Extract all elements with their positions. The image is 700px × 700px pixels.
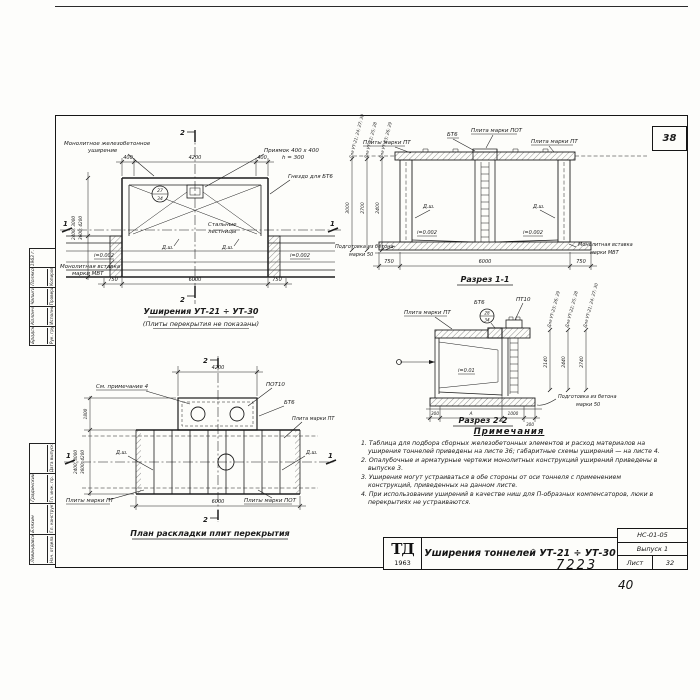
detail-sheet: 34 bbox=[157, 196, 163, 202]
section1-labels: Плиты марки ПТ БТ6 Плита марки ПОТ Плита… bbox=[335, 128, 633, 258]
dim-750-right: 750 bbox=[576, 259, 586, 265]
plan-subtitle-text: (Плиты перекрытия не показаны) bbox=[143, 320, 259, 328]
stamp-role: Исполнитель bbox=[47, 308, 54, 324]
plan-title-text: Уширения УТ-21 ÷ УТ-30 bbox=[144, 307, 259, 316]
section1-structure bbox=[353, 149, 647, 253]
section2-detail-mark: 28 34 bbox=[480, 309, 494, 323]
label-pit-2: h = 300 bbox=[282, 155, 305, 161]
dim-side-variants-2: 3600; 4200 bbox=[78, 216, 83, 240]
dim-300-left: 300 bbox=[431, 411, 439, 416]
section-mark-1-right: 1 bbox=[328, 452, 333, 460]
height-3000: 3000 bbox=[345, 202, 351, 214]
slope-label: i=0.01 bbox=[458, 368, 475, 374]
plan2-labels: См. примечание 4 ПОТ10 БТ6 Плита марки П… bbox=[66, 382, 335, 504]
height-group-1: Для УТ-23; 26; 29 bbox=[546, 290, 561, 329]
dim-variants-2: 3600; 4200 bbox=[80, 450, 85, 474]
height-2700: 2700 bbox=[360, 202, 366, 214]
stamp-cell: Бляхин Гл. конструктор bbox=[30, 504, 55, 534]
joint-right: Д.ш. bbox=[305, 450, 318, 456]
slope-left: i=0.002 bbox=[417, 230, 437, 236]
stamp-name: Бляхин bbox=[31, 505, 36, 533]
stamp-role: Дата выпуска bbox=[47, 445, 54, 472]
dim-side-variants-1: 2400; 3000 bbox=[71, 216, 76, 240]
stamp-cell: Градинский Гл. инж. пр. bbox=[30, 473, 55, 503]
handwritten-doc-number: 7223 bbox=[556, 558, 597, 573]
label-bt6: БТ6 bbox=[474, 300, 485, 306]
stamp-cell: Чапыгин Проверил bbox=[30, 287, 55, 306]
dim-400-left: 400 bbox=[123, 155, 133, 161]
dim-variants-1: 2400; 3000 bbox=[73, 450, 78, 474]
title-block-codes: НС-01-05 Выпуск 1 Лист 32 bbox=[617, 528, 688, 570]
section1-height-dims: Для УТ-21; 24; 27; 30 Для УТ-22; 25; 28 … bbox=[345, 113, 393, 252]
stamp-cell: Бродский Рук. группы bbox=[30, 326, 55, 345]
document-code: НС-01-05 bbox=[618, 529, 687, 543]
issue-label: Выпуск 1 bbox=[618, 543, 687, 557]
section-1-1-drawing: Для УТ-21; 24; 27; 30 Для УТ-22; 25; 28 … bbox=[335, 120, 685, 290]
logo-box: ТД 1963 bbox=[384, 538, 422, 569]
label-insert-2: марки МВТ bbox=[72, 271, 104, 277]
signature-stamp-lower: Левандовский Нач. отдела Бляхин Гл. конс… bbox=[29, 443, 56, 565]
stamp-role: Рук. группы bbox=[47, 328, 54, 344]
note-item: 2. Опалубочные и арматурные чертежи моно… bbox=[354, 457, 664, 473]
label-pt: Плита марки ПТ bbox=[292, 416, 335, 422]
height-2400: 2400 bbox=[375, 202, 381, 214]
detail-number: 28 bbox=[484, 311, 490, 316]
stamp-cell: Колончиков Исполнитель bbox=[30, 306, 55, 325]
stamp-year: 1963 г. bbox=[30, 249, 55, 267]
dim-750-left: 750 bbox=[384, 259, 394, 265]
detail-sheet: 34 bbox=[484, 318, 490, 323]
dim-6000: 6000 bbox=[189, 277, 202, 283]
stamp-role: Гл. конструктор bbox=[47, 506, 54, 533]
height-2140: 2140 bbox=[543, 356, 549, 368]
stamp-name: Бродский bbox=[31, 327, 36, 344]
label-pot-plural: Плиты марки ПОТ bbox=[244, 498, 297, 504]
section-2-2-drawing: 28 34 Плита марки ПТ БТ6 ПТ10 i=0.01 Под… bbox=[390, 292, 690, 432]
signature-stamp-upper: Бродский Рук. группы Колончиков Исполнит… bbox=[29, 248, 56, 346]
sheet-number: 32 bbox=[653, 556, 687, 569]
section-mark-2-top: 2 bbox=[203, 357, 208, 365]
label-see-note: См. примечание 4 bbox=[96, 384, 149, 390]
dim-6000: 6000 bbox=[212, 499, 225, 505]
plan2-title: План раскладки плит перекрытия bbox=[130, 529, 289, 539]
label-pt10: ПТ10 bbox=[516, 297, 531, 303]
plan-labels: Монолитное железобетонное уширение Приям… bbox=[60, 141, 333, 277]
section-mark-2-top: 2 bbox=[180, 129, 185, 137]
plan2-title-text: План раскладки плит перекрытия bbox=[130, 529, 289, 538]
stamp-role: Копировала bbox=[47, 269, 54, 285]
base-label-1: Подготовка из бетона bbox=[558, 394, 617, 400]
base-label-2: марки 50 bbox=[576, 402, 600, 408]
section2-title-text: Разрез 2-2 bbox=[459, 416, 508, 425]
note-item: 1. Таблица для подбора сборных железобет… bbox=[354, 440, 664, 456]
label-bt6: БТ6 bbox=[447, 132, 458, 138]
stamp-name: Левандовский bbox=[31, 535, 36, 563]
joint-left: Д.ш. bbox=[422, 204, 435, 210]
logo-year: 1963 bbox=[394, 559, 411, 567]
stamp-role: Нач. отдела bbox=[47, 536, 54, 563]
notes-block: Примечания 1. Таблица для подбора сборны… bbox=[354, 427, 664, 509]
label-slope-right: i=0.002 bbox=[290, 253, 310, 259]
label-joint-right: Д.ш. bbox=[221, 245, 234, 251]
joint-right: Д.ш. bbox=[532, 204, 545, 210]
stamp-cell: Полякова Копировала bbox=[30, 267, 55, 286]
section-mark-1-left: 1 bbox=[66, 452, 71, 460]
label-stairs-1: Стальные bbox=[208, 222, 237, 228]
height-2440: 2440 bbox=[561, 356, 567, 368]
detail-number: 27 bbox=[157, 188, 163, 194]
slope-right: i=0.002 bbox=[523, 230, 543, 236]
section2-height-dims: Для УТ-23; 26; 29 Для УТ-22; 25; 28 Для … bbox=[543, 282, 599, 392]
section1-bottom-dims: 750 6000 750 bbox=[373, 252, 597, 270]
insert-label-1: Монолитная вставка bbox=[578, 242, 633, 248]
label-slope-left: i=0.002 bbox=[94, 253, 114, 259]
joint-left: Д.ш. bbox=[115, 450, 128, 456]
stamp-name: Полякова bbox=[31, 269, 36, 286]
stamp-role: Гл. инж. пр. bbox=[47, 475, 54, 502]
label-pot10: ПОТ10 bbox=[266, 382, 285, 388]
label-pt-plural: Плиты марки ПТ bbox=[66, 498, 114, 504]
sheet-word: Лист bbox=[618, 556, 653, 569]
dim-4200: 4200 bbox=[189, 155, 202, 161]
label-monolithic-widening-1: Монолитное железобетонное bbox=[64, 141, 151, 147]
dim-750-right: 750 bbox=[272, 277, 282, 283]
notes-title: Примечания bbox=[354, 427, 664, 437]
section1-title-text: Разрез 1-1 bbox=[461, 275, 510, 284]
stamp-cell: Дата выпуска bbox=[30, 444, 55, 473]
base-label-2: марки 50 bbox=[349, 252, 373, 258]
dim-750-left: 750 bbox=[108, 277, 118, 283]
stamp-role: Проверил bbox=[47, 289, 54, 305]
stamp-name: Чапыгин bbox=[31, 288, 36, 305]
section-mark-1-left: 1 bbox=[63, 220, 68, 228]
label-pot: Плита марки ПОТ bbox=[471, 128, 523, 134]
plan-title: Уширения УТ-21 ÷ УТ-30 (Плиты перекрытия… bbox=[143, 307, 259, 329]
label-pit-1: Приямок 400 х 400 bbox=[264, 148, 319, 154]
label-pt-right: Плита марки ПТ bbox=[531, 139, 578, 145]
note-item: 3. Уширения могут устраиваться в обе сто… bbox=[354, 474, 664, 490]
label-socket-bt6: Гнездо для БТ6 bbox=[288, 174, 333, 180]
base-label-1: Подготовка из бетона bbox=[335, 244, 394, 250]
height-group-1: Для УТ-21; 24; 27; 30 bbox=[348, 113, 365, 160]
label-joint-left: Д.ш. bbox=[161, 245, 174, 251]
drawing-sheet: 38 2 2 1 1 bbox=[0, 0, 700, 700]
section-mark-2-bottom: 2 bbox=[180, 296, 185, 304]
dim-6000: 6000 bbox=[479, 259, 492, 265]
label-insert-1: Монолитная вставка bbox=[60, 264, 121, 270]
plan-detail-mark: 27 34 bbox=[152, 186, 168, 202]
section-mark-2-bottom: 2 bbox=[203, 516, 208, 524]
height-group-2: Для УТ-22; 25; 28 bbox=[564, 290, 579, 329]
label-monolithic-widening-2: уширение bbox=[87, 148, 118, 154]
label-pt: Плита марки ПТ bbox=[404, 310, 451, 316]
dim-1800: 1800 bbox=[83, 408, 88, 419]
plan-structure bbox=[66, 178, 335, 277]
dim-4200: 4200 bbox=[212, 365, 225, 371]
section2-title: Разрез 2-2 bbox=[453, 416, 513, 426]
label-pt-left: Плиты марки ПТ bbox=[363, 140, 411, 146]
stamp-cell: Левандовский Нач. отдела bbox=[30, 534, 55, 564]
insert-label-2: марки МВТ bbox=[590, 250, 620, 256]
sheet-row: Лист 32 bbox=[618, 556, 687, 569]
dim-1000: 1000 bbox=[508, 411, 519, 416]
plan-widening-drawing: 2 2 1 1 bbox=[58, 118, 343, 333]
stamp-name: Градинский bbox=[31, 475, 36, 503]
height-2740: 2740 bbox=[579, 356, 585, 368]
note-item: 4. При использовании уширений в качестве… bbox=[354, 491, 664, 507]
slab-layout-plan-drawing: 2 2 1 1 bbox=[58, 352, 343, 552]
label-bt6: БТ6 bbox=[284, 400, 295, 406]
stamp-name: Колончиков bbox=[31, 308, 36, 325]
plan2-structure bbox=[82, 398, 318, 494]
section1-title: Разрез 1-1 bbox=[457, 275, 513, 285]
handwritten-inventory-number: 40 bbox=[618, 578, 633, 592]
scan-top-edge bbox=[55, 6, 688, 7]
logo-td: ТД bbox=[391, 540, 414, 558]
dim-400-right: 400 bbox=[257, 155, 267, 161]
section2-structure bbox=[397, 317, 543, 409]
label-stairs-2: лестницы bbox=[207, 229, 237, 235]
